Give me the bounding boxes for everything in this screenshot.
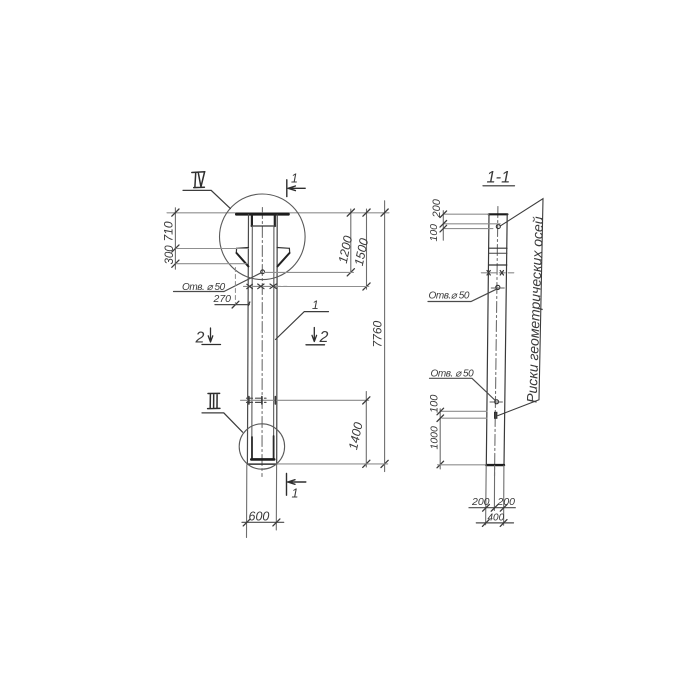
svg-text:1500: 1500: [352, 237, 371, 267]
svg-text:200: 200: [471, 496, 490, 508]
svg-text:600: 600: [249, 510, 270, 524]
svg-text:1: 1: [291, 172, 298, 186]
svg-text:Отв. ⌀ 50: Отв. ⌀ 50: [182, 282, 226, 293]
svg-text:2: 2: [319, 329, 329, 346]
svg-text:100: 100: [429, 394, 441, 413]
svg-text:300: 300: [164, 245, 176, 265]
svg-text:270: 270: [213, 293, 232, 305]
svg-text:400: 400: [488, 513, 505, 524]
svg-text:1000: 1000: [429, 426, 441, 450]
svg-text:200: 200: [431, 198, 443, 218]
svg-text:Отв.⌀ 50: Отв.⌀ 50: [429, 291, 470, 302]
svg-text:1: 1: [312, 298, 319, 312]
svg-text:200: 200: [497, 496, 516, 508]
svg-text:7760: 7760: [371, 320, 385, 347]
svg-text:1: 1: [292, 487, 299, 501]
svg-text:100: 100: [428, 224, 440, 242]
svg-text:Риски геометрических осей: Риски геометрических осей: [524, 216, 547, 403]
svg-text:1-1: 1-1: [487, 169, 511, 187]
svg-text:710: 710: [162, 221, 176, 241]
svg-text:1400: 1400: [346, 421, 365, 451]
